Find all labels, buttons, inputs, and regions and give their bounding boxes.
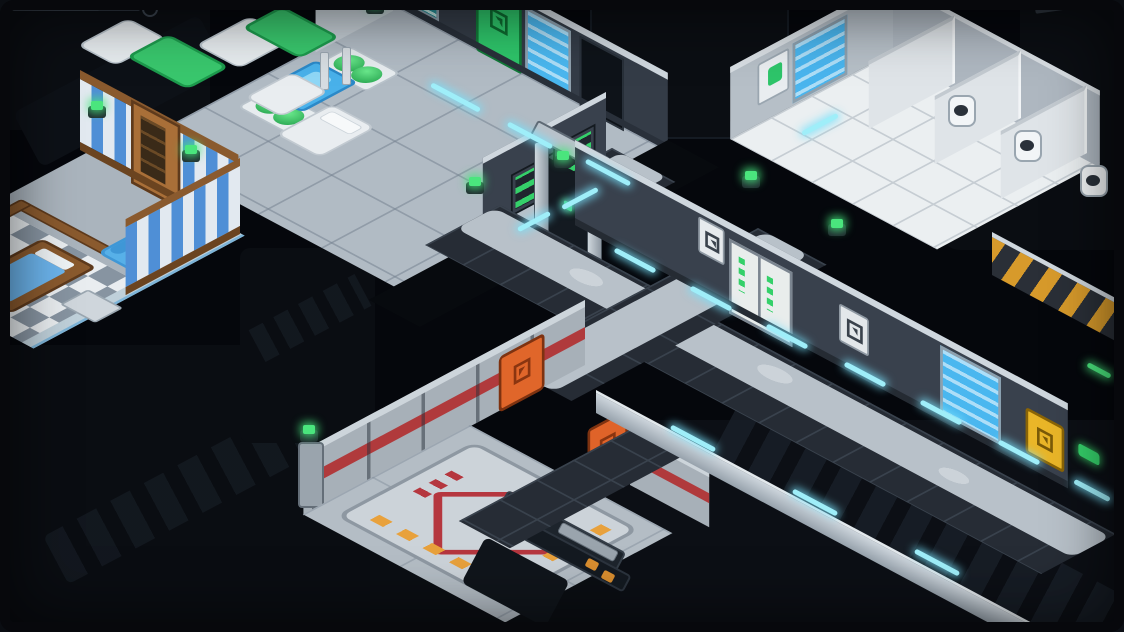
spiral-sign-icon [847, 318, 863, 344]
antenna-arm-icon [98, 2, 140, 11]
orange-door[interactable] [499, 333, 545, 413]
toilet-seat [954, 105, 968, 116]
spiral-sign-icon [1037, 427, 1053, 453]
green-lamp [466, 182, 484, 194]
green-lamp [300, 430, 318, 442]
green-glow-strip [1086, 362, 1111, 379]
game-viewport [0, 0, 1124, 632]
toilet[interactable] [1014, 130, 1042, 162]
spiral-sign-icon [490, 7, 508, 36]
toilet[interactable] [948, 95, 976, 127]
antenna-top-left [12, 6, 104, 11]
toilet-seat [1086, 175, 1100, 186]
spiral-sign-icon [514, 357, 531, 385]
fountain-arch-post [342, 47, 351, 85]
green-emblem [768, 61, 782, 87]
green-emblem-sign [757, 47, 789, 106]
toilet-seat [1020, 140, 1034, 151]
white-sign [839, 303, 869, 357]
antenna-dish-icon [142, 1, 158, 17]
green-lamp [182, 150, 200, 162]
spiral-sign-icon [705, 231, 719, 255]
green-lamp [366, 2, 384, 14]
toilet[interactable] [1080, 165, 1108, 197]
green-lamp [554, 156, 572, 168]
fountain-arch-post [320, 52, 329, 90]
wardrobe-slot [141, 115, 166, 184]
green-lamp [88, 106, 106, 118]
door-indicator-green [739, 256, 745, 293]
green-lamp [828, 224, 846, 236]
green-lamp [742, 176, 760, 188]
corner-post [298, 442, 324, 508]
door-indicator-green [767, 275, 773, 312]
door-split [758, 257, 761, 321]
